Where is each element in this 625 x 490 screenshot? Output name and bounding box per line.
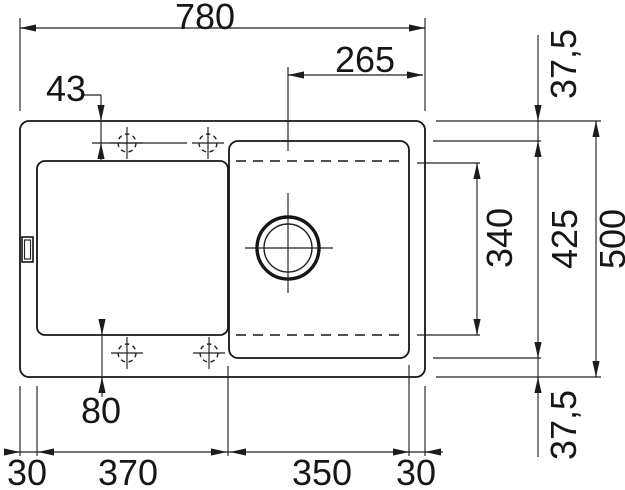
dim-label-rim-bottom: 37,5 <box>543 390 584 460</box>
dim-label-tap-offset-bottom: 80 <box>81 390 121 431</box>
dim-label-bowl-inner-length: 340 <box>479 208 520 268</box>
tap-hole-bottom-left <box>111 337 143 369</box>
dim-label-overall-depth: 500 <box>592 209 625 269</box>
drain <box>245 67 333 293</box>
dim-label-tap-offset-top: 43 <box>46 68 86 109</box>
dim-label-bowl-width: 350 <box>292 452 352 490</box>
tap-holes <box>92 127 225 369</box>
dim-label-overall-width: 780 <box>175 0 235 37</box>
sink-outline <box>20 121 425 377</box>
dim-label-drainboard-width: 370 <box>98 452 158 490</box>
tap-hole-top-right <box>192 127 224 159</box>
sink-outer-rim <box>20 121 425 377</box>
dim-label-rim-top: 37,5 <box>543 29 584 99</box>
overflow-slot-inner <box>25 240 31 259</box>
tap-hole-bottom-right <box>193 337 225 369</box>
dim-label-drain-offset: 265 <box>335 39 395 80</box>
dim-label-bowl-length: 425 <box>544 209 585 269</box>
drainboard <box>37 161 228 335</box>
dim-label-rim-left: 30 <box>7 452 47 490</box>
tap-hole-top-left <box>111 127 143 159</box>
dim-label-rim-right: 30 <box>396 452 436 490</box>
sink-technical-drawing: 780 265 43 80 30 370 350 30 37,5 340 425… <box>0 0 625 490</box>
drawing-canvas: 780 265 43 80 30 370 350 30 37,5 340 425… <box>0 0 625 490</box>
overflow-slot-outer <box>22 237 33 262</box>
dimension-labels: 780 265 43 80 30 370 350 30 37,5 340 425… <box>7 0 625 490</box>
